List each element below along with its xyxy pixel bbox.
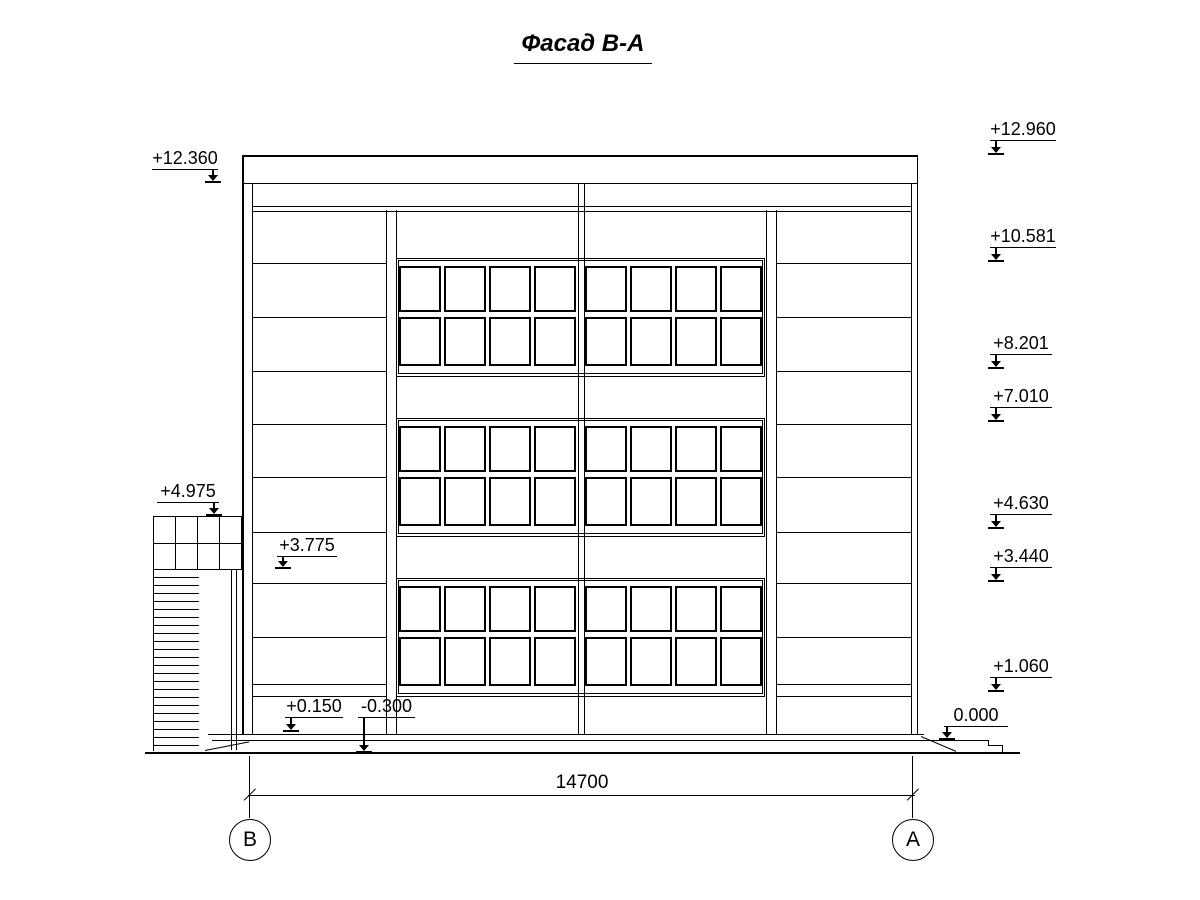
window-pane bbox=[675, 426, 717, 472]
stair-tread-line bbox=[153, 593, 199, 594]
window-pane bbox=[675, 637, 717, 686]
window-pane bbox=[489, 317, 531, 366]
level-arrow-icon bbox=[991, 514, 1001, 529]
window-pane bbox=[585, 317, 627, 366]
pilaster-line bbox=[386, 210, 387, 734]
window-pane bbox=[399, 586, 441, 632]
step-tread-line bbox=[988, 745, 1002, 746]
elevation-label: +12.360 bbox=[152, 149, 218, 167]
elevation-label: +10.581 bbox=[990, 227, 1056, 245]
stair-tread-line bbox=[153, 673, 199, 674]
axis-label-b: В bbox=[243, 828, 257, 852]
stair-tread-line bbox=[153, 585, 199, 586]
window-pane bbox=[720, 637, 762, 686]
stair-tread-line bbox=[153, 729, 199, 730]
wall-band-line bbox=[252, 317, 386, 318]
window-pane bbox=[585, 477, 627, 526]
wall-band-line bbox=[776, 371, 911, 372]
window-pane bbox=[399, 637, 441, 686]
parapet-bottom-line bbox=[242, 183, 918, 184]
wall-band-line bbox=[776, 477, 911, 478]
level-arrow-icon bbox=[278, 556, 288, 569]
window-pane bbox=[720, 266, 762, 312]
window-pane bbox=[444, 637, 486, 686]
window-pane bbox=[675, 317, 717, 366]
wall-band-line bbox=[776, 637, 911, 638]
stair-tread-line bbox=[153, 721, 199, 722]
elevation-label: 0.000 bbox=[953, 706, 998, 724]
pilaster-line bbox=[766, 210, 767, 734]
window-pane bbox=[489, 477, 531, 526]
stair-tread-line bbox=[153, 641, 199, 642]
wall-band-line bbox=[776, 684, 911, 685]
wall-band-line bbox=[252, 477, 386, 478]
stair-tread-line bbox=[153, 609, 199, 610]
level-arrow-icon bbox=[208, 169, 218, 183]
stair-tread-line bbox=[153, 665, 199, 666]
window-pane bbox=[720, 317, 762, 366]
facade-inner-left-line bbox=[252, 183, 253, 734]
slab-inner-line bbox=[212, 740, 988, 741]
window-pane bbox=[630, 426, 672, 472]
stair-tower-left-edge bbox=[153, 569, 154, 751]
dimension-label: 14700 bbox=[482, 772, 682, 794]
elevation-label: +4.630 bbox=[993, 494, 1049, 512]
drawing-title-text: Фасад В-А bbox=[514, 30, 653, 64]
window-pane bbox=[630, 637, 672, 686]
window-pane bbox=[534, 317, 576, 366]
center-mullion-line bbox=[584, 183, 585, 734]
parapet-top-edge bbox=[242, 155, 918, 157]
window-pane bbox=[534, 426, 576, 472]
window-pane bbox=[720, 477, 762, 526]
wall-band-line bbox=[776, 532, 911, 533]
door-frame-line bbox=[231, 569, 232, 750]
level-arrow-icon bbox=[991, 677, 1001, 692]
window-pane bbox=[630, 586, 672, 632]
window-pane bbox=[585, 586, 627, 632]
elevation-label: +3.775 bbox=[279, 536, 335, 554]
window-pane bbox=[399, 266, 441, 312]
window-pane bbox=[720, 426, 762, 472]
window-pane bbox=[489, 266, 531, 312]
elevation-label: +7.010 bbox=[993, 387, 1049, 405]
wall-band-line bbox=[252, 637, 386, 638]
window-pane bbox=[489, 637, 531, 686]
window-pane bbox=[534, 266, 576, 312]
wall-band-line bbox=[776, 263, 911, 264]
witness-line bbox=[249, 756, 250, 818]
window-pane bbox=[489, 586, 531, 632]
witness-line bbox=[912, 756, 913, 818]
level-arrow-icon bbox=[209, 502, 219, 516]
base-slab-top-line bbox=[208, 734, 924, 735]
window-pane bbox=[399, 317, 441, 366]
stair-tread-line bbox=[153, 657, 199, 658]
level-arrow-icon bbox=[991, 567, 1001, 582]
stair-tread-line bbox=[153, 633, 199, 634]
drawing-title: Фасад В-А bbox=[498, 30, 668, 64]
wall-band-line bbox=[252, 696, 386, 697]
level-underline bbox=[944, 726, 1008, 727]
stair-tread-line bbox=[153, 577, 199, 578]
building-right-edge bbox=[917, 155, 919, 735]
window-pane bbox=[585, 426, 627, 472]
elevation-label: +4.975 bbox=[160, 482, 216, 500]
wall-band-line bbox=[252, 532, 386, 533]
window-pane bbox=[630, 477, 672, 526]
wall-band-line bbox=[252, 583, 386, 584]
facade-drawing-canvas: Фасад В-А +12.360 +4.975 +3.775 +0.150 -… bbox=[0, 0, 1200, 900]
wall-band-line bbox=[776, 317, 911, 318]
stair-tread-line bbox=[153, 697, 199, 698]
window-pane bbox=[444, 317, 486, 366]
elevation-label: +0.150 bbox=[286, 697, 342, 715]
window-pane bbox=[399, 477, 441, 526]
axis-circle-b: В bbox=[229, 819, 271, 861]
stair-tread-line bbox=[153, 705, 199, 706]
stair-tread-line bbox=[153, 737, 199, 738]
dimension-line bbox=[248, 795, 915, 796]
level-arrow-icon bbox=[991, 247, 1001, 262]
axis-circle-a: А bbox=[892, 819, 934, 861]
window-pane bbox=[489, 426, 531, 472]
window-pane bbox=[444, 266, 486, 312]
stair-tread-line bbox=[153, 601, 199, 602]
window-pane bbox=[675, 586, 717, 632]
door-frame-line bbox=[236, 569, 237, 750]
elevation-label: +8.201 bbox=[993, 334, 1049, 352]
wall-band-line bbox=[776, 583, 911, 584]
stair-tread-line bbox=[153, 625, 199, 626]
stair-tread-line bbox=[153, 713, 199, 714]
wall-band-line bbox=[776, 696, 911, 697]
wall-band-line bbox=[776, 424, 911, 425]
axis-label-a: А bbox=[906, 828, 920, 852]
level-arrow-icon bbox=[991, 140, 1001, 155]
level-arrow-icon bbox=[991, 354, 1001, 369]
level-arrow-icon bbox=[991, 407, 1001, 422]
pilaster-line bbox=[396, 210, 397, 734]
wall-band-line bbox=[252, 424, 386, 425]
level-arrow-icon bbox=[286, 717, 296, 732]
window-pane bbox=[675, 477, 717, 526]
window-pane bbox=[585, 266, 627, 312]
stair-tower-grid-line bbox=[153, 543, 242, 544]
window-pane bbox=[720, 586, 762, 632]
wall-band-line bbox=[252, 371, 386, 372]
window-pane bbox=[630, 266, 672, 312]
stair-tread-line bbox=[153, 649, 199, 650]
stair-tread-line bbox=[153, 745, 199, 746]
window-pane bbox=[399, 426, 441, 472]
facade-inner-right-line bbox=[911, 183, 912, 734]
stair-tread-line bbox=[153, 617, 199, 618]
window-pane bbox=[675, 266, 717, 312]
roof-slab-line bbox=[252, 211, 912, 212]
window-pane bbox=[444, 426, 486, 472]
elevation-label: +3.440 bbox=[993, 547, 1049, 565]
window-pane bbox=[585, 637, 627, 686]
building-left-edge bbox=[242, 155, 244, 735]
wall-band-line bbox=[252, 263, 386, 264]
window-pane bbox=[534, 586, 576, 632]
pilaster-line bbox=[776, 210, 777, 734]
stair-tread-line bbox=[153, 689, 199, 690]
roof-slab-line bbox=[252, 206, 912, 207]
window-pane bbox=[444, 477, 486, 526]
center-mullion-line bbox=[578, 183, 579, 734]
window-pane bbox=[444, 586, 486, 632]
elevation-label: +1.060 bbox=[993, 657, 1049, 675]
slab-taper-line bbox=[205, 741, 249, 751]
level-arrow-icon bbox=[942, 726, 952, 740]
wall-band-line bbox=[252, 684, 386, 685]
stair-tread-line bbox=[153, 681, 199, 682]
window-pane bbox=[630, 317, 672, 366]
ground-line bbox=[145, 752, 1020, 755]
window-pane bbox=[534, 637, 576, 686]
window-pane bbox=[534, 477, 576, 526]
elevation-label: +12.960 bbox=[990, 120, 1056, 138]
